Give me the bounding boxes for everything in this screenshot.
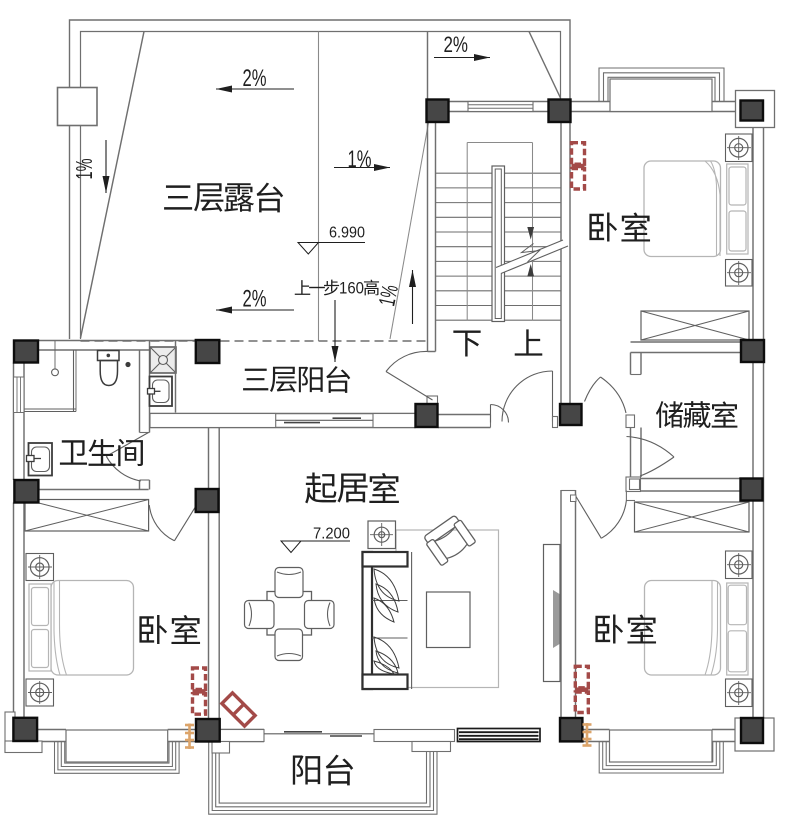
svg-text:2%: 2% [243,286,267,313]
svg-text:1%: 1% [71,159,97,180]
svg-text:2%: 2% [444,32,469,57]
svg-text:1%: 1% [348,146,372,173]
svg-text:2%: 2% [243,65,267,92]
svg-text:7.200: 7.200 [313,526,350,543]
svg-text:160: 160 [339,279,364,298]
svg-text:6.990: 6.990 [329,225,365,242]
